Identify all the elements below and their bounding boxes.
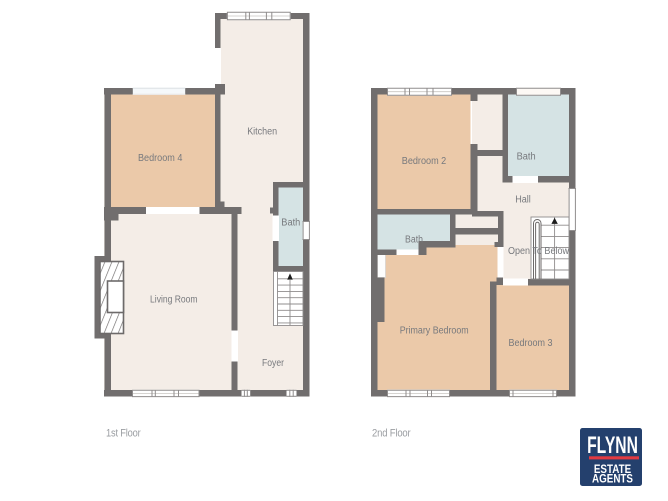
svg-text:2nd Floor: 2nd Floor: [372, 427, 411, 439]
svg-text:Bedroom 3: Bedroom 3: [509, 338, 553, 349]
svg-text:Foyer: Foyer: [262, 358, 285, 369]
svg-text:1st Floor: 1st Floor: [106, 427, 141, 439]
svg-text:Bedroom 4: Bedroom 4: [138, 153, 183, 164]
svg-text:Living Room: Living Room: [150, 294, 198, 305]
svg-text:Bath: Bath: [405, 235, 423, 246]
svg-text:Primary Bedroom: Primary Bedroom: [400, 326, 469, 337]
svg-text:Hall: Hall: [515, 195, 531, 206]
svg-text:Bath: Bath: [517, 151, 536, 162]
svg-text:Bath: Bath: [281, 218, 300, 229]
svg-text:Kitchen: Kitchen: [247, 127, 277, 138]
svg-text:Bedroom 2: Bedroom 2: [402, 156, 447, 167]
svg-text:FLYNN: FLYNN: [587, 432, 638, 459]
svg-text:AGENTS: AGENTS: [592, 473, 633, 486]
svg-text:Open To Below: Open To Below: [508, 246, 570, 257]
